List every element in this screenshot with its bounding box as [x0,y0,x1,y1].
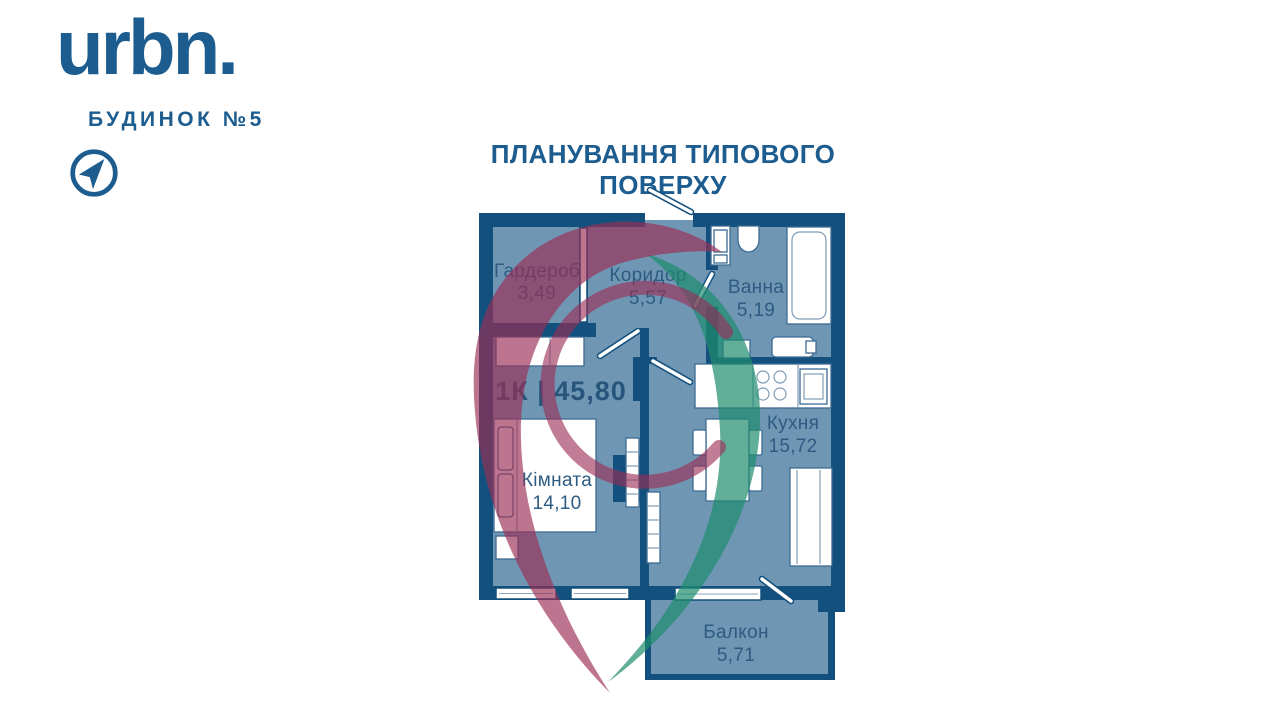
floor-plan: Гардероб 3,49 Коридор 5,57 Ванна 5,19 1К… [470,180,855,695]
room-area-vanna: 5,19 [737,300,775,321]
room-label-kukhnya: Кухня [767,413,819,434]
room-area-balkon: 5,71 [717,645,755,666]
shelf [647,492,660,563]
room-label-kimnata: Кімната [522,470,592,491]
compass-arrow [79,159,104,189]
balcony-wall [818,586,845,612]
room-area-kukhnya: 15,72 [768,436,817,457]
toilet [738,226,759,252]
chair [693,430,706,455]
room-label-balkon: Балкон [703,622,769,643]
entrance-door [650,190,691,212]
building-label: БУДИНОК №5 [88,108,265,132]
balcony-wall [645,674,835,680]
brand-logo: urbn. [56,2,236,93]
column [633,357,649,401]
faucet [806,341,816,353]
room-area-kimnata: 14,10 [532,493,581,514]
shelf [626,438,639,507]
bathtub [787,227,831,324]
compass-icon [67,146,121,200]
page: urbn. БУДИНОК №5 ПЛАНУВАННЯ ТИПОВОГО ПОВ… [0,0,1280,720]
sofa [790,468,832,566]
room-label-vanna: Ванна [728,277,784,298]
